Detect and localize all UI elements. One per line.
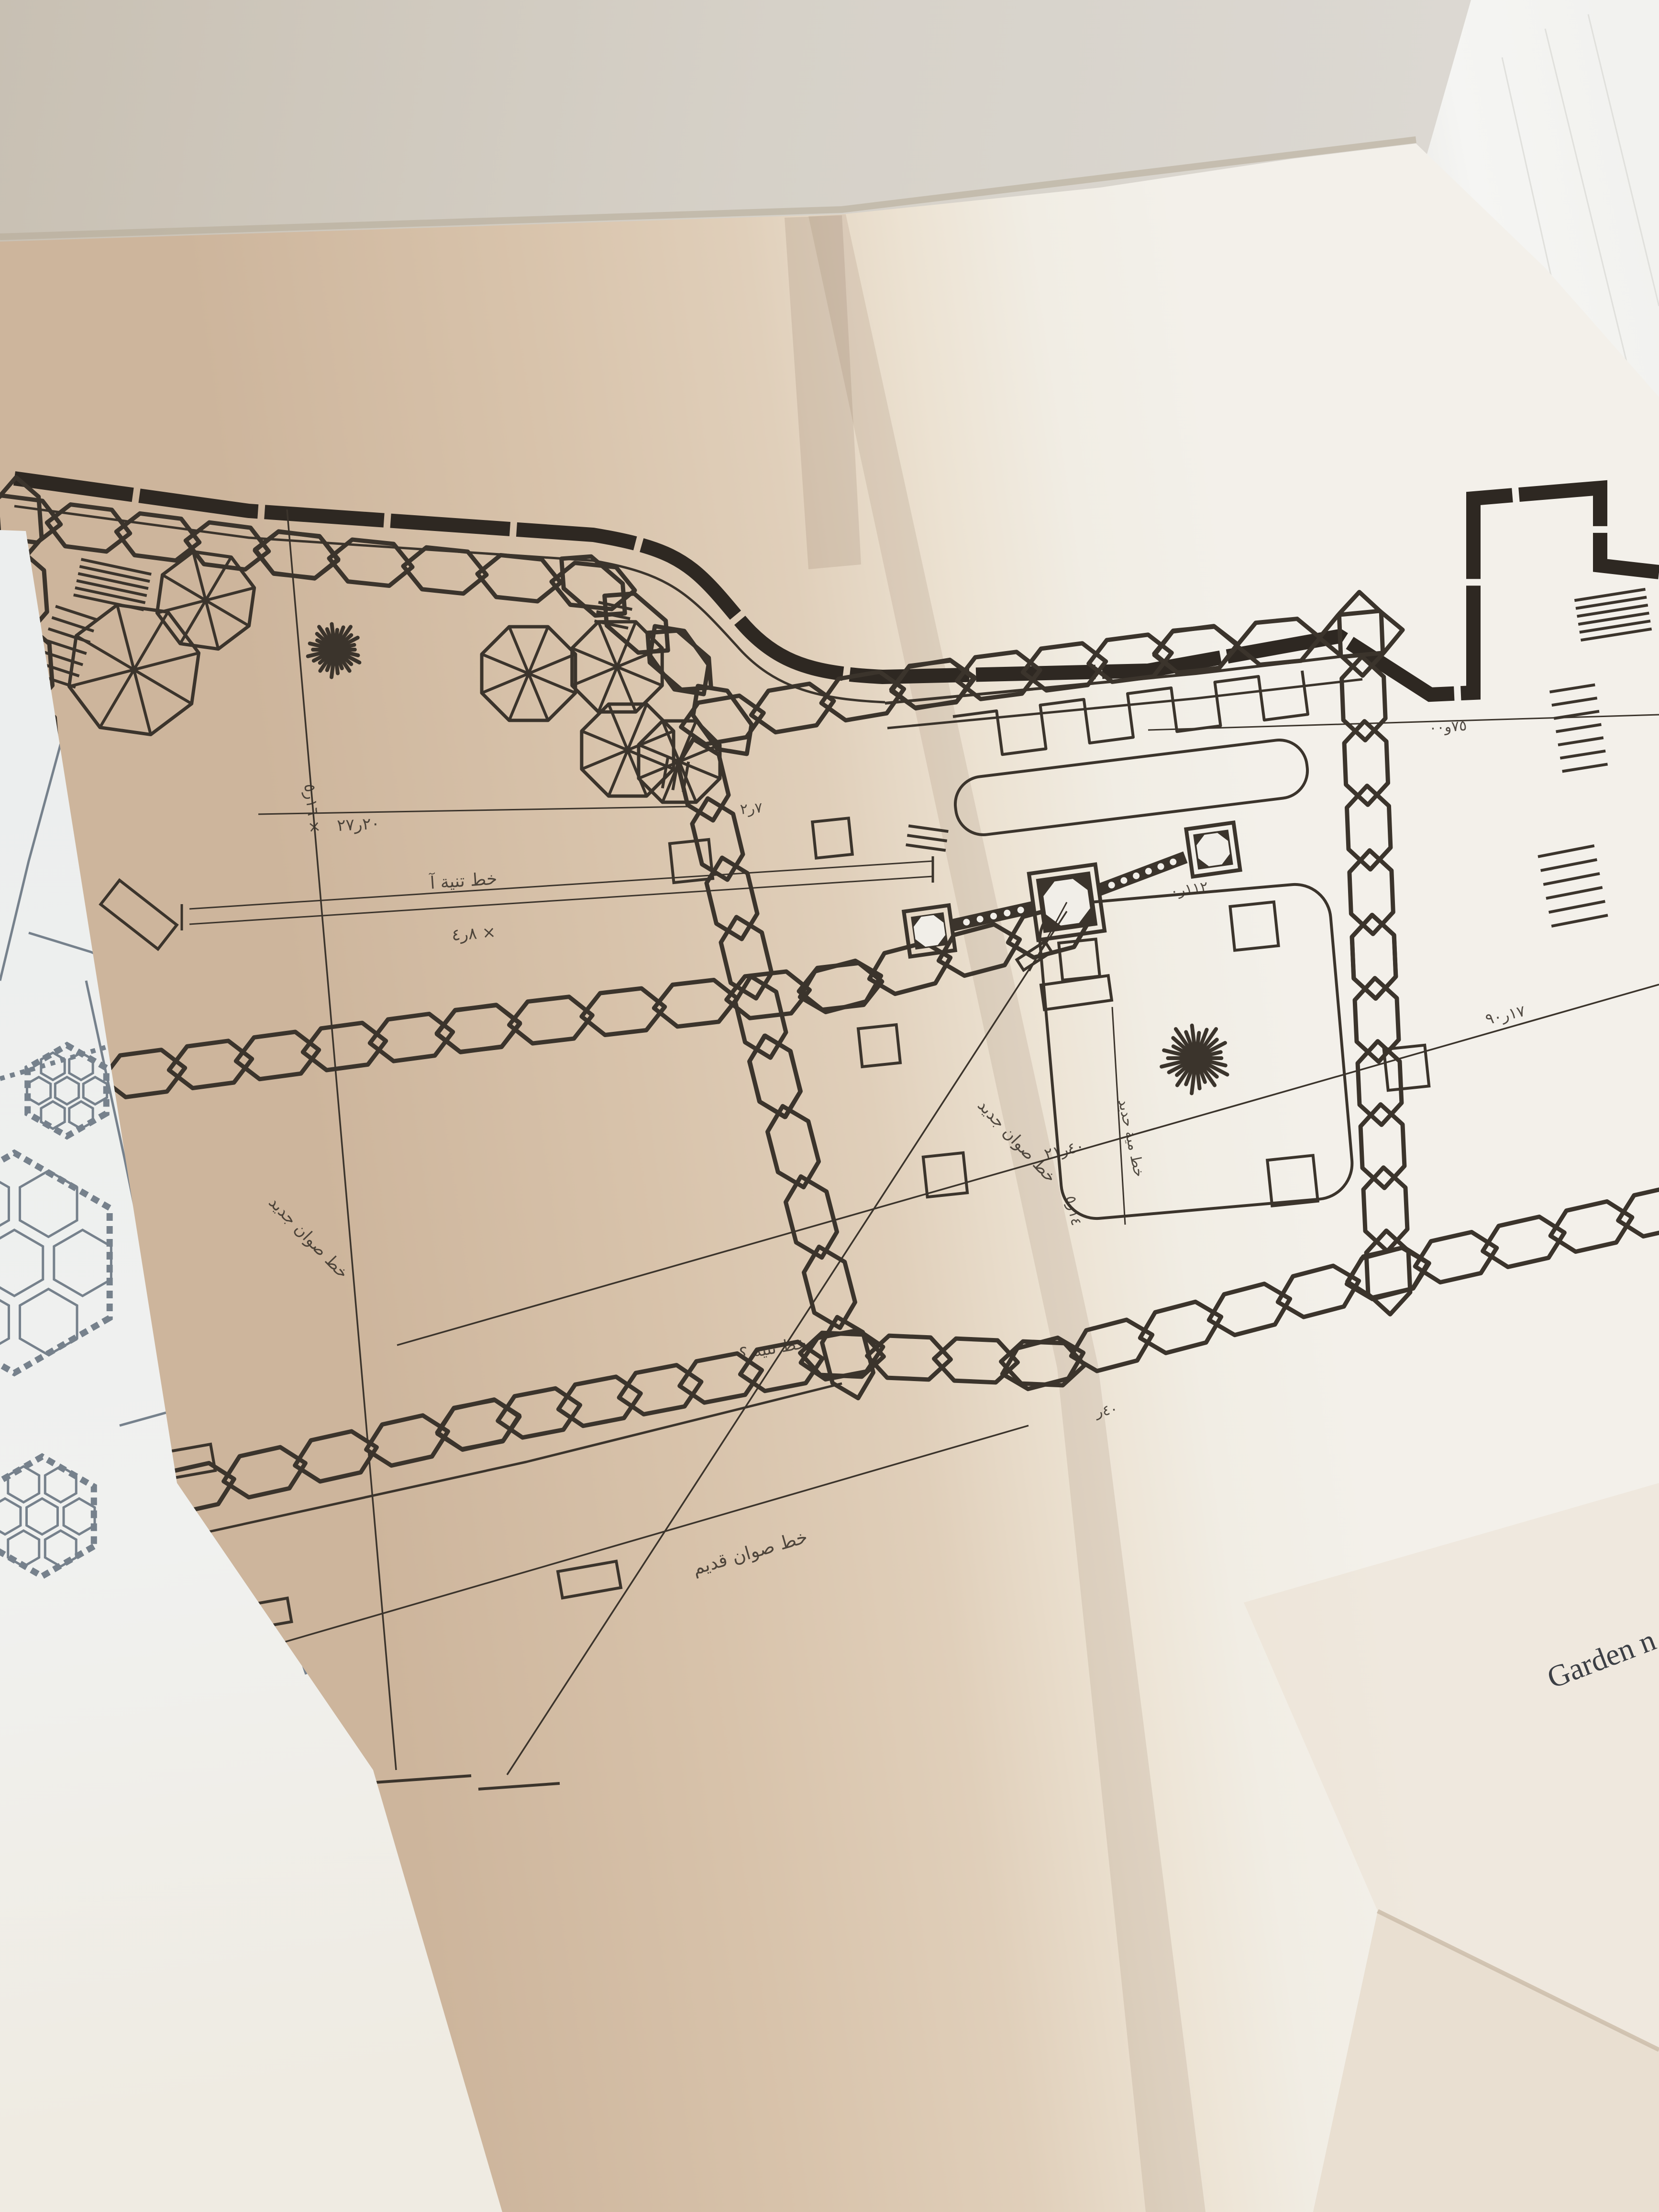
book-photo: { "photo": { "caption_fragment": "Garden… (0, 0, 1659, 2212)
annotation-dim-8-4: ٨ر٤ × (451, 923, 497, 945)
annotation-dim-27-20: ٢٠ر٢٧ (336, 814, 380, 835)
annotation-dim-75: ٧٥و٠٠ (1428, 718, 1467, 737)
photo-of-open-book-with-foldout-garden-plan: خط تنية آ ٨ر٤ × ٢٠ر٢٧ ١٦ر٥ × ٧ر٢ ١١٢ر٠ ٤… (0, 0, 1659, 2212)
annotation-dim-7-2: ٧ر٢ (740, 799, 763, 818)
